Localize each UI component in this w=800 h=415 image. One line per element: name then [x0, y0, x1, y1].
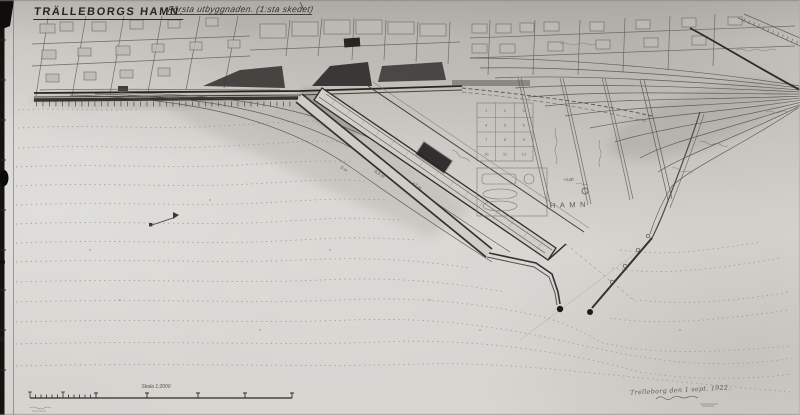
anchor-mark: [149, 223, 152, 226]
punch-hole: [0, 170, 9, 186]
svg-text:7: 7: [485, 137, 488, 142]
signature-squiggle: [656, 396, 718, 406]
page-title: TRÄLLEBORGS HAMN.: [34, 2, 184, 20]
svg-text:5: 5: [504, 123, 507, 128]
flag-mark: [173, 212, 179, 219]
map-title-text: TRÄLLEBORGS HAMN.: [33, 6, 185, 20]
svg-text:10: 10: [484, 152, 489, 157]
scanned-harbor-plan: TRÄLLEBORGS HAMN. Första utbyggnaden. (1…: [0, 0, 800, 415]
svg-text:2: 2: [504, 108, 507, 113]
svg-text:6: 6: [523, 123, 526, 128]
svg-text:1: 1: [485, 108, 488, 113]
city-blocks-middle: [250, 18, 460, 64]
map-subtitle-text: Första utbyggnaden. (1:sta skedet): [167, 4, 314, 15]
map-canvas: 1 2 3 4 5 6 7 8 9 10 11 12: [0, 0, 800, 415]
svg-text:11: 11: [503, 152, 508, 157]
east-pierhead-beacon: [587, 309, 593, 315]
svg-text:8: 8: [504, 137, 507, 142]
scale-bar: [28, 392, 294, 398]
harbor-area-label: HAMN: [550, 200, 590, 210]
east-breakwater: [592, 238, 652, 308]
scale-label: Skala 1:2000: [141, 384, 170, 390]
west-pierhead-beacon: [557, 306, 563, 312]
svg-text:12: 12: [521, 152, 526, 157]
depth-mark: +4,00: [563, 177, 574, 182]
svg-text:9: 9: [523, 137, 526, 142]
svg-text:4: 4: [485, 123, 488, 128]
dark-shore-structures: [203, 62, 530, 88]
